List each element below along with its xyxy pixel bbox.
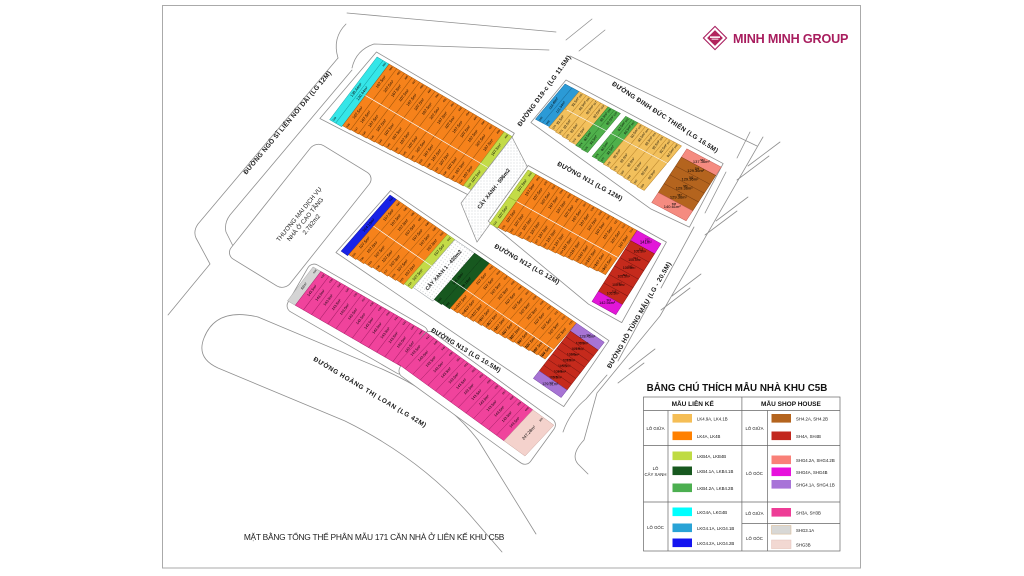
- svg-text:MINH MINH GROUP: MINH MINH GROUP: [733, 32, 848, 46]
- svg-text:585: 585: [689, 175, 694, 179]
- svg-text:LKB4A, LKB4B: LKB4A, LKB4B: [697, 454, 726, 459]
- svg-text:602: 602: [586, 333, 591, 337]
- svg-text:586: 586: [683, 184, 688, 188]
- svg-text:SHG3B: SHG3B: [796, 542, 811, 547]
- svg-text:610: 610: [549, 380, 554, 384]
- svg-text:LKB4.2A, LKB4.2B: LKB4.2A, LKB4.2B: [697, 486, 733, 491]
- svg-text:SH3A, SH3B: SH3A, SH3B: [796, 510, 821, 515]
- svg-text:LK4A, LK4B: LK4A, LK4B: [697, 434, 721, 439]
- svg-text:SH4.2A, SH4.2B: SH4.2A, SH4.2B: [796, 416, 828, 421]
- svg-text:LKG4.1A, LKG4.1B: LKG4.1A, LKG4.1B: [697, 526, 734, 531]
- svg-text:516: 516: [623, 273, 628, 277]
- svg-text:587: 587: [677, 193, 682, 197]
- svg-text:LK4.9A, LK4.1B: LK4.9A, LK4.1B: [697, 416, 728, 421]
- svg-text:606: 606: [567, 358, 572, 362]
- svg-text:SHG3.1A: SHG3.1A: [796, 528, 814, 533]
- svg-text:588: 588: [672, 202, 677, 206]
- svg-text:LKB4.1A, LKB4.1B: LKB4.1A, LKB4.1B: [697, 469, 733, 474]
- svg-text:LKG4.2A, LKG4.2B: LKG4.2A, LKG4.2B: [697, 541, 734, 546]
- svg-text:LÔ GIỮA: LÔ GIỮA: [746, 426, 764, 431]
- svg-text:583: 583: [700, 158, 705, 162]
- svg-text:517: 517: [617, 281, 622, 285]
- svg-text:LÔ GÓC: LÔ GÓC: [746, 471, 763, 476]
- svg-text:SH4A, SH4B: SH4A, SH4B: [796, 434, 821, 439]
- svg-text:CÂY XANH: CÂY XANH: [645, 472, 667, 477]
- svg-text:607: 607: [562, 363, 567, 367]
- svg-text:515: 515: [628, 264, 633, 268]
- svg-text:513: 513: [639, 247, 644, 251]
- svg-text:BẢNG CHÚ THÍCH MẪU NHÀ KHU C5B: BẢNG CHÚ THÍCH MẪU NHÀ KHU C5B: [647, 382, 828, 394]
- svg-text:SHG4.1A, SHG4.1B: SHG4.1A, SHG4.1B: [796, 482, 835, 487]
- svg-text:605: 605: [571, 352, 576, 356]
- svg-text:LÔ: LÔ: [653, 466, 659, 471]
- svg-text:LÔ GIỮA: LÔ GIỮA: [746, 511, 764, 516]
- svg-text:514: 514: [633, 256, 638, 260]
- svg-text:584: 584: [695, 167, 700, 171]
- svg-text:LKG4A, LKG4B: LKG4A, LKG4B: [697, 510, 727, 515]
- svg-text:SHG4A, SHG4B: SHG4A, SHG4B: [796, 470, 828, 475]
- svg-text:SHG4.2A, SHG4.2B: SHG4.2A, SHG4.2B: [796, 458, 835, 463]
- svg-text:512: 512: [645, 237, 650, 241]
- svg-text:LÔ GÓC: LÔ GÓC: [647, 525, 664, 530]
- svg-text:MẶT BẰNG TỔNG THỂ PHÂN MẪU 171: MẶT BẰNG TỔNG THỂ PHÂN MẪU 171 CĂN NHÀ Ở…: [244, 531, 505, 542]
- svg-text:518: 518: [612, 290, 617, 294]
- svg-text:MẪU SHOP HOUSE: MẪU SHOP HOUSE: [761, 399, 821, 408]
- svg-text:603: 603: [580, 341, 585, 345]
- svg-text:LÔ GÓC: LÔ GÓC: [746, 536, 763, 541]
- svg-text:LÔ GIỮA: LÔ GIỮA: [647, 426, 665, 431]
- svg-text:609: 609: [554, 375, 559, 379]
- svg-text:608: 608: [558, 369, 563, 373]
- svg-text:604: 604: [576, 346, 581, 350]
- svg-text:519: 519: [607, 298, 612, 302]
